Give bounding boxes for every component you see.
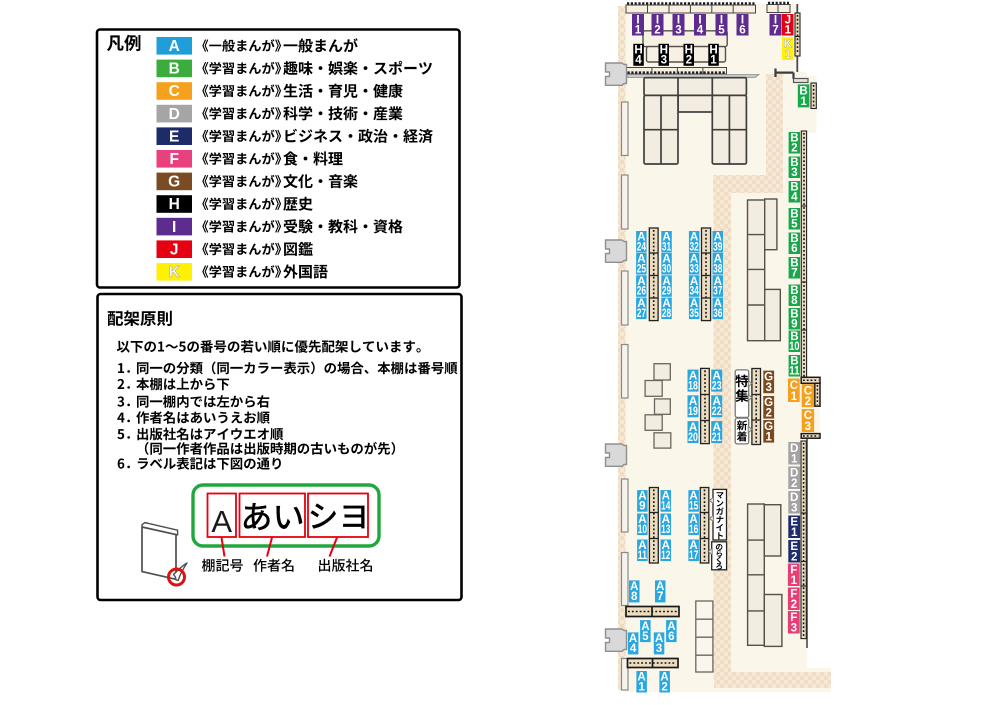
svg-text:K: K <box>169 264 181 281</box>
svg-text:D: D <box>169 106 180 123</box>
svg-text:1: 1 <box>791 452 798 465</box>
svg-text:9: 9 <box>791 317 798 330</box>
svg-text:36: 36 <box>713 307 723 320</box>
svg-text:3: 3 <box>791 166 798 179</box>
svg-text:13: 13 <box>661 523 671 536</box>
svg-text:38: 38 <box>713 262 723 275</box>
svg-text:21: 21 <box>712 431 722 444</box>
svg-text:3: 3 <box>661 54 668 67</box>
svg-text:3: 3 <box>805 420 812 433</box>
svg-text:22: 22 <box>712 405 722 418</box>
svg-text:1: 1 <box>800 95 807 108</box>
svg-text:A: A <box>169 38 180 55</box>
svg-text:27: 27 <box>637 307 646 320</box>
svg-text:A: A <box>211 504 232 539</box>
svg-text:10: 10 <box>789 340 799 353</box>
svg-text:14: 14 <box>661 500 671 513</box>
svg-text:20: 20 <box>688 431 698 444</box>
svg-text:1: 1 <box>765 430 772 443</box>
svg-text:26: 26 <box>637 285 647 298</box>
svg-text:2: 2 <box>791 477 797 490</box>
svg-text:C: C <box>169 83 180 100</box>
svg-text:6: 6 <box>791 242 798 255</box>
svg-text:35: 35 <box>689 307 699 320</box>
svg-text:37: 37 <box>713 285 722 298</box>
svg-text:7: 7 <box>657 590 663 603</box>
svg-text:1: 1 <box>791 390 798 403</box>
svg-text:5: 5 <box>718 23 725 36</box>
svg-text:15: 15 <box>689 500 699 513</box>
svg-text:29: 29 <box>662 285 672 298</box>
svg-text:11: 11 <box>638 549 648 562</box>
svg-text:3: 3 <box>675 23 682 36</box>
svg-text:2: 2 <box>765 406 771 419</box>
svg-text:2: 2 <box>661 680 667 693</box>
svg-text:1: 1 <box>638 680 645 693</box>
svg-text:25: 25 <box>637 262 647 275</box>
svg-text:1: 1 <box>710 54 717 67</box>
svg-text:1: 1 <box>791 574 798 587</box>
svg-text:19: 19 <box>688 405 698 418</box>
svg-text:3: 3 <box>656 642 663 655</box>
svg-text:J: J <box>170 241 179 258</box>
svg-text:31: 31 <box>662 240 672 253</box>
svg-text:24: 24 <box>637 240 647 253</box>
svg-text:2: 2 <box>791 550 797 563</box>
svg-text:39: 39 <box>713 240 723 253</box>
svg-text:4: 4 <box>630 642 637 655</box>
svg-text:34: 34 <box>689 285 699 298</box>
svg-text:18: 18 <box>688 379 698 392</box>
svg-text:8: 8 <box>631 590 638 603</box>
svg-text:10: 10 <box>638 523 647 536</box>
svg-text:G: G <box>168 174 180 191</box>
svg-text:F: F <box>169 151 178 168</box>
svg-text:1: 1 <box>791 526 798 539</box>
svg-text:2: 2 <box>791 141 797 154</box>
svg-text:B: B <box>169 61 180 78</box>
svg-text:28: 28 <box>662 307 672 320</box>
svg-text:33: 33 <box>689 262 699 275</box>
svg-text:1: 1 <box>785 23 792 36</box>
svg-text:7: 7 <box>772 23 778 36</box>
svg-text:30: 30 <box>662 262 671 275</box>
svg-text:8: 8 <box>791 294 798 307</box>
svg-text:23: 23 <box>712 379 722 392</box>
svg-text:3: 3 <box>765 381 772 394</box>
svg-text:5: 5 <box>791 217 798 230</box>
svg-text:3: 3 <box>791 621 798 634</box>
svg-text:9: 9 <box>639 500 646 513</box>
svg-text:16: 16 <box>689 523 699 536</box>
svg-text:17: 17 <box>689 549 698 562</box>
svg-text:7: 7 <box>791 266 797 279</box>
svg-text:1: 1 <box>635 23 642 36</box>
svg-text:4: 4 <box>791 190 798 203</box>
svg-text:6: 6 <box>668 630 675 643</box>
svg-text:3: 3 <box>791 501 798 514</box>
svg-text:2: 2 <box>805 395 811 408</box>
svg-text:12: 12 <box>661 549 670 562</box>
svg-text:E: E <box>169 128 179 145</box>
svg-text:I: I <box>172 219 176 236</box>
svg-text:32: 32 <box>689 240 698 253</box>
svg-text:11: 11 <box>789 364 800 377</box>
svg-text:1: 1 <box>785 48 792 61</box>
svg-text:H: H <box>169 196 180 213</box>
svg-text:4: 4 <box>635 54 642 67</box>
svg-text:2: 2 <box>791 598 797 611</box>
svg-text:2: 2 <box>686 54 692 67</box>
svg-text:5: 5 <box>642 630 649 643</box>
svg-text:6: 6 <box>739 23 746 36</box>
svg-text:4: 4 <box>697 23 704 36</box>
svg-text:2: 2 <box>654 23 660 36</box>
